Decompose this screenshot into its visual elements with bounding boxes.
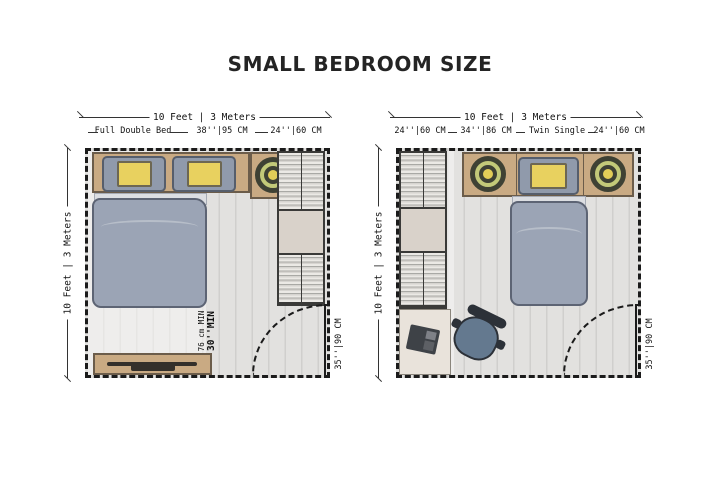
label-leader [88,132,98,133]
label-nightstand-width: 24''|60 CM [593,126,644,136]
laptop-keyboard [423,340,435,351]
door-swing-arc [252,304,327,375]
clearance-imperial: 30''MIN [207,311,218,352]
door-width-label: 35''|90 CM [334,318,344,369]
dresser [93,353,212,375]
label-full-double-bed: Full Double Bed [95,126,172,136]
page-title: SMALL BEDROOM SIZE [0,52,720,76]
label-leader [170,132,188,133]
door-width-label: 35''|90 CM [645,318,655,369]
potted-plant-icon [470,156,506,192]
small-bedroom-size-diagram: SMALL BEDROOM SIZE 10 Feet | 3 Meters Fu… [0,0,720,497]
dimension-label-side: 10 Feet | 3 Meters [63,207,74,320]
label-leader [516,132,525,133]
twin-single-bed [510,201,588,306]
door-leaf [324,304,326,375]
label-leader [448,132,457,133]
unit-divider [583,154,584,195]
label-desk-width: 34''|86 CM [460,126,511,136]
dimension-line-side: 10 Feet | 3 Meters [67,148,68,378]
wardrobe-shelves [279,255,323,304]
wardrobe-cabinet [401,209,445,253]
dimension-line-top: 10 Feet | 3 Meters [390,117,641,118]
full-double-bed [92,198,207,308]
chair-armrest [494,339,506,351]
cushion [530,163,567,189]
label-wardrobe-depth: 24''|60 CM [270,126,321,136]
wardrobe [399,151,447,309]
wardrobe-shelves [401,253,445,307]
dimension-label-side: 10 Feet | 3 Meters [374,207,385,320]
dresser-handle [131,364,175,371]
duvet-fold [516,227,581,241]
unit-divider [516,154,517,195]
cushion [117,161,152,187]
room-outline: 76 cm MIN 30''MIN [85,148,330,378]
wardrobe-cabinet [279,211,323,255]
clearance-annotation: 76 cm MIN 30''MIN [198,311,218,352]
label-wardrobe-width: 24''|60 CM [394,126,445,136]
cushion [187,161,222,187]
wardrobe [277,151,325,306]
potted-plant-icon [590,156,626,192]
wardrobe-shelves [401,153,445,209]
duvet-fold [101,220,199,234]
room-outline [396,148,641,378]
label-clearance-width: 38''|95 CM [196,126,247,136]
dimension-label-top: 10 Feet | 3 Meters [149,112,260,123]
label-leader [588,132,594,133]
dimension-line-side: 10 Feet | 3 Meters [378,148,379,378]
door-swing-arc [563,304,638,375]
door-leaf [635,304,637,375]
dimension-line-top: 10 Feet | 3 Meters [79,117,330,118]
laptop-screen [425,331,436,341]
label-twin-single: Twin Single [529,126,585,136]
wardrobe-shelves [279,153,323,211]
dimension-label-top: 10 Feet | 3 Meters [460,112,571,123]
label-leader [255,132,268,133]
